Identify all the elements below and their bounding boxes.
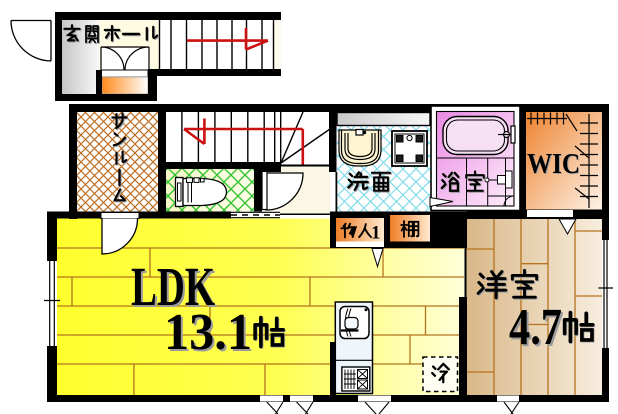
- svg-text:4.7: 4.7: [509, 299, 562, 356]
- svg-text:1: 1: [371, 223, 381, 244]
- svg-text:WIC: WIC: [527, 148, 580, 180]
- svg-text:13.1: 13.1: [164, 304, 252, 361]
